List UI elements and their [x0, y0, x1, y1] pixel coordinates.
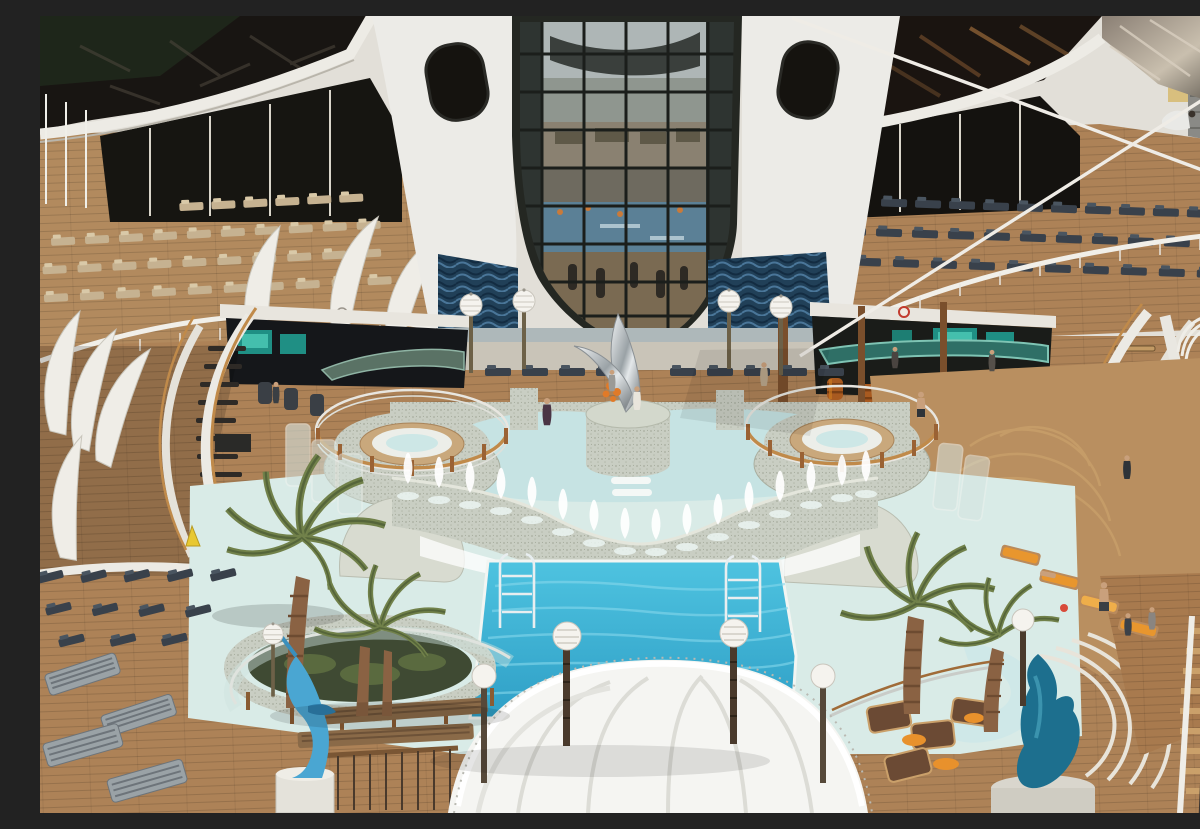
barrel-stool: [827, 378, 843, 400]
scene-canvas: [40, 16, 1200, 813]
sculpture-pedestal: [991, 788, 1095, 813]
teal-screen: [280, 334, 306, 354]
no-smoking-sign: [899, 307, 909, 317]
red-towel: [1060, 604, 1068, 612]
photo-cruise-pool-deck: [40, 16, 1200, 813]
palm-shadow: [212, 604, 344, 628]
teal-screen-glow: [242, 334, 268, 348]
equipment-case: [215, 434, 251, 452]
